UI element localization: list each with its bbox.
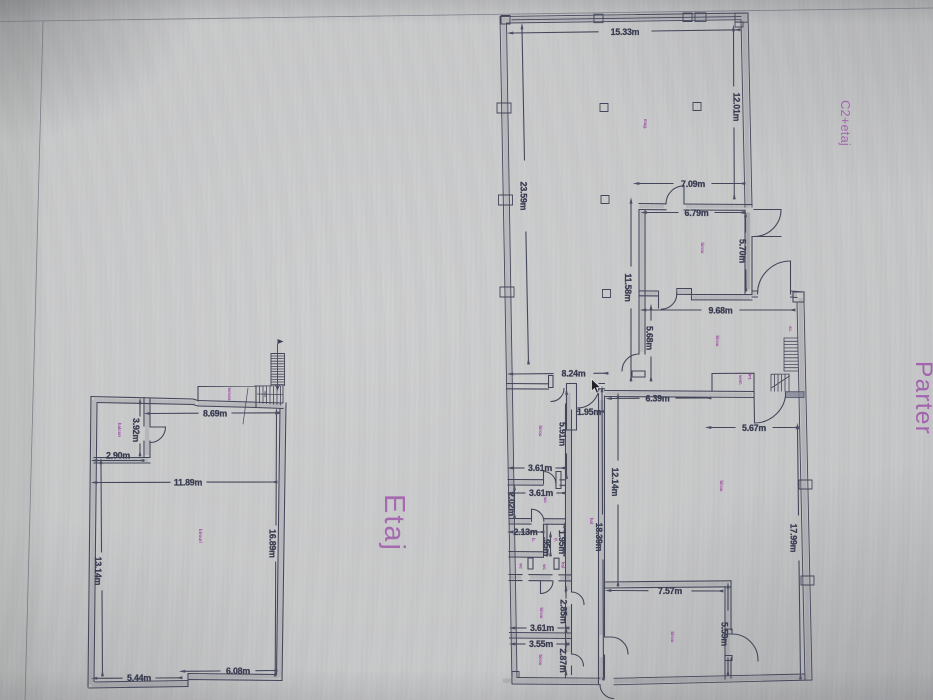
svg-text:2.90m: 2.90m (106, 451, 130, 461)
svg-text:2.87m: 2.87m (558, 649, 568, 673)
svg-text:3.61m: 3.61m (529, 488, 553, 498)
svg-text:3.55m: 3.55m (529, 639, 553, 649)
svg-text:3.92m: 3.92m (131, 418, 141, 442)
svg-text:wc: wc (542, 563, 547, 570)
svg-text:1.95m: 1.95m (577, 407, 601, 417)
svg-text:11.58m: 11.58m (623, 273, 633, 302)
svg-text:23.59m: 23.59m (519, 182, 529, 211)
svg-text:balcon: balcon (117, 423, 122, 437)
svg-text:2.13m: 2.13m (514, 527, 538, 537)
svg-text:13.14m: 13.14m (93, 557, 103, 586)
svg-text:b.: b. (531, 538, 536, 542)
svg-text:17.99m: 17.99m (789, 524, 799, 553)
svg-text:int.: int. (748, 374, 753, 381)
svg-text:.95m: .95m (542, 537, 552, 557)
svg-text:Parter: Parter (910, 361, 933, 435)
svg-text:6.39m: 6.39m (646, 394, 670, 404)
svg-text:birou: birou (715, 336, 720, 347)
svg-text:birou: birou (538, 426, 543, 437)
svg-text:C2+etaj: C2+etaj (838, 100, 853, 146)
svg-text:hol: hol (561, 562, 566, 569)
svg-text:vest.: vest. (738, 375, 743, 385)
svg-text:wc: wc (519, 562, 524, 569)
svg-text:hol: hol (589, 518, 594, 525)
svg-text:12.14m: 12.14m (610, 468, 620, 497)
svg-text:birouri: birouri (198, 529, 203, 543)
svg-text:15.33m: 15.33m (611, 27, 640, 37)
svg-text:birou: birou (670, 632, 675, 643)
svg-text:8.69m: 8.69m (203, 408, 227, 418)
svg-text:3.61m: 3.61m (528, 463, 552, 473)
svg-text:11.89m: 11.89m (174, 477, 203, 487)
svg-text:2.85m: 2.85m (559, 600, 569, 624)
svg-text:9.68m: 9.68m (709, 305, 733, 315)
svg-text:3.61m: 3.61m (530, 623, 554, 633)
svg-text:8.24m: 8.24m (562, 369, 586, 379)
svg-text:5.59m: 5.59m (720, 622, 730, 646)
svg-text:2.02m: 2.02m (507, 492, 517, 516)
svg-text:sc.: sc. (788, 326, 793, 332)
svg-text:d.: d. (554, 538, 559, 542)
svg-text:7.09m: 7.09m (681, 179, 705, 189)
svg-text:5.68m: 5.68m (645, 326, 655, 350)
svg-text:5.91m: 5.91m (558, 422, 568, 446)
svg-text:5.67m: 5.67m (742, 423, 766, 433)
svg-text:birou: birou (538, 655, 543, 666)
svg-text:mag.: mag. (643, 119, 648, 129)
svg-text:birou: birou (539, 608, 544, 619)
svg-text:5.70m: 5.70m (738, 239, 748, 263)
svg-text:16.89m: 16.89m (268, 529, 278, 558)
svg-text:terasa: terasa (227, 388, 232, 401)
svg-text:7.57m: 7.57m (658, 586, 682, 596)
svg-text:6.08m: 6.08m (226, 666, 250, 676)
svg-text:Etaj: Etaj (378, 494, 410, 552)
svg-text:5.44m: 5.44m (127, 673, 151, 683)
svg-text:18.39m: 18.39m (594, 523, 604, 552)
svg-text:wc: wc (543, 496, 548, 503)
svg-text:6.79m: 6.79m (685, 208, 709, 218)
svg-text:birou: birou (700, 243, 705, 254)
svg-text:12.01m: 12.01m (732, 93, 742, 122)
svg-text:1.95m: 1.95m (557, 530, 567, 554)
svg-text:birou: birou (719, 481, 724, 492)
